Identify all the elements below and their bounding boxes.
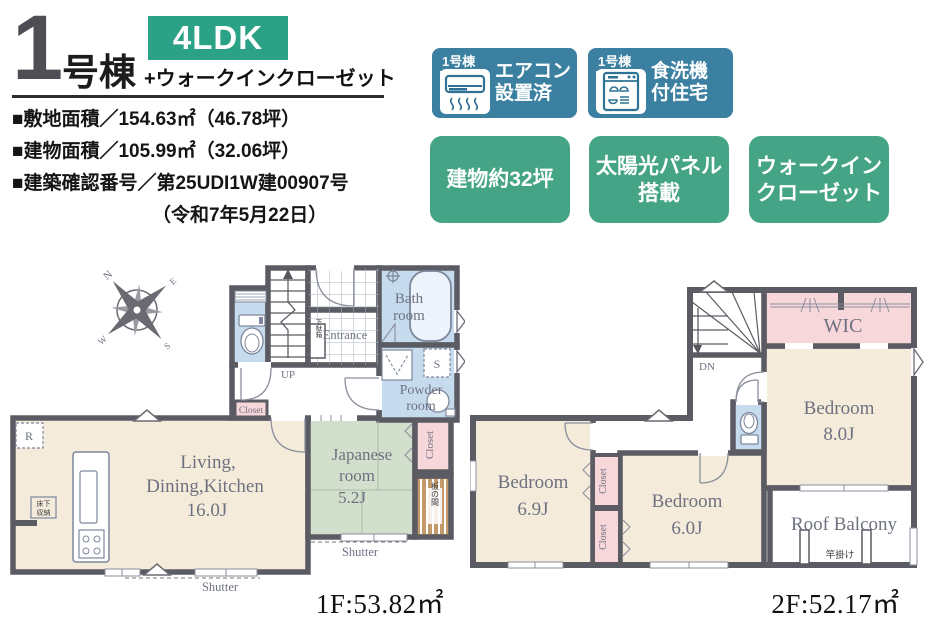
property-specs: ■敷地面積／154.63㎡（46.78坪） ■建物面積／105.99㎡（32.0… (12, 104, 432, 232)
aircon-badge: 1号棟 エアコン 設置済 (432, 48, 577, 118)
solar-badge: 太陽光パネル 搭載 (589, 136, 729, 223)
label-bed69-2: 6.9J (517, 499, 548, 520)
label-up: UP (281, 369, 295, 381)
compass-s: S (162, 341, 172, 352)
dishwasher-badge-line1: 食洗機 (651, 61, 708, 83)
label-balcony: Roof Balcony (791, 514, 898, 535)
plan-type-note: +ウォークインクローゼット (144, 62, 396, 91)
label-powder-1: Powder (400, 383, 443, 398)
label-floor-storage-2: 収納 (37, 508, 51, 517)
label-bed8-2: 8.0J (823, 424, 854, 445)
compass-w: W (96, 333, 109, 346)
building-number-suffix: 号棟 (62, 42, 136, 96)
floor1-area-label: 1F:53.82㎡ (290, 582, 470, 621)
dishwasher-badge: 1号棟 食洗機 付住宅 (588, 48, 733, 118)
wic-badge: ウォークイン クローゼット (749, 136, 889, 223)
compass-icon: N E S W (66, 258, 208, 382)
confirmation-number: ■建築確認番号／第25UDI1W建00907号 (12, 168, 432, 200)
label-fridge: R (25, 429, 33, 443)
site-area: ■敷地面積／154.63㎡（46.78坪） (12, 104, 432, 136)
label-shutter-japanese: Shutter (342, 545, 379, 559)
label-bed8-1: Bedroom (804, 398, 875, 419)
label-dn: DN (699, 361, 715, 373)
kitchen-counter (73, 452, 109, 562)
label-bath-1: Bath (395, 291, 424, 307)
label-ldk-1: Living, (180, 452, 235, 473)
confirmation-date: （令和7年5月22日） (12, 200, 432, 232)
building-number: 1 (12, 2, 61, 94)
aircon-icon (440, 69, 490, 114)
wic-badge-line2: クローゼット (756, 180, 882, 207)
label-japanese-1: Japanese (332, 445, 392, 464)
building-area: ■建物面積／105.99㎡（32.06坪） (12, 136, 432, 168)
dishwasher-icon (596, 69, 646, 114)
label-powder-2: room (406, 399, 436, 414)
label-shutter-ldk: Shutter (202, 580, 239, 594)
label-pole-hanger: 竿掛け (826, 549, 855, 561)
size-badge-line1: 建物約32坪 (446, 166, 553, 193)
floorplan-sheet: 1 号棟 4LDK +ウォークインクローゼット ■敷地面積／154.63㎡（46… (0, 0, 939, 632)
wall-stub (13, 520, 37, 526)
wic-badge-line1: ウォークイン (756, 153, 882, 180)
floor2-plan: WIC Bedroom 8.0J Bedroom 6.9J Bedroom 6.… (470, 258, 935, 588)
floor1-plan: N E S W Living, Dining,Kitchen 16.0J Jap… (5, 258, 465, 606)
compass-e: E (168, 275, 179, 287)
label-wic: WIC (824, 315, 863, 337)
solar-badge-line1: 太陽光パネル (596, 153, 722, 180)
plan-type-badge: 4LDK (148, 16, 288, 60)
label-washer: S (434, 357, 441, 371)
label-bath-2: room (393, 308, 425, 324)
dishwasher-badge-line2: 付住宅 (651, 83, 708, 105)
label-bed69-1: Bedroom (498, 472, 569, 493)
label-entrance: Entrance (323, 328, 368, 342)
label-itanoma: 板の間 (431, 481, 440, 507)
label-closet-upper: Closet (598, 468, 609, 494)
header-divider (12, 95, 384, 98)
label-ldk-2: Dining,Kitchen (146, 476, 264, 497)
label-bed6-2: 6.0J (671, 518, 702, 539)
floor2-area-label: 2F:52.17㎡ (733, 582, 938, 621)
aircon-badge-line2: 設置済 (495, 83, 571, 105)
label-bed6-1: Bedroom (652, 491, 723, 512)
solar-badge-line2: 搭載 (638, 180, 680, 207)
label-floor-storage-1: 床下 (37, 499, 51, 508)
aircon-badge-line1: エアコン (495, 61, 571, 83)
label-japanese-3: 5.2J (338, 488, 366, 507)
label-closet-hall: Closet (239, 406, 264, 416)
label-ldk-3: 16.0J (187, 500, 228, 521)
toilet-icon-2f (741, 413, 759, 445)
label-closet-japanese: Closet (424, 431, 436, 459)
label-closet-lower: Closet (598, 524, 609, 550)
compass-n: N (101, 268, 115, 282)
label-japanese-2: room (339, 466, 375, 485)
size-badge: 建物約32坪 (430, 136, 570, 223)
